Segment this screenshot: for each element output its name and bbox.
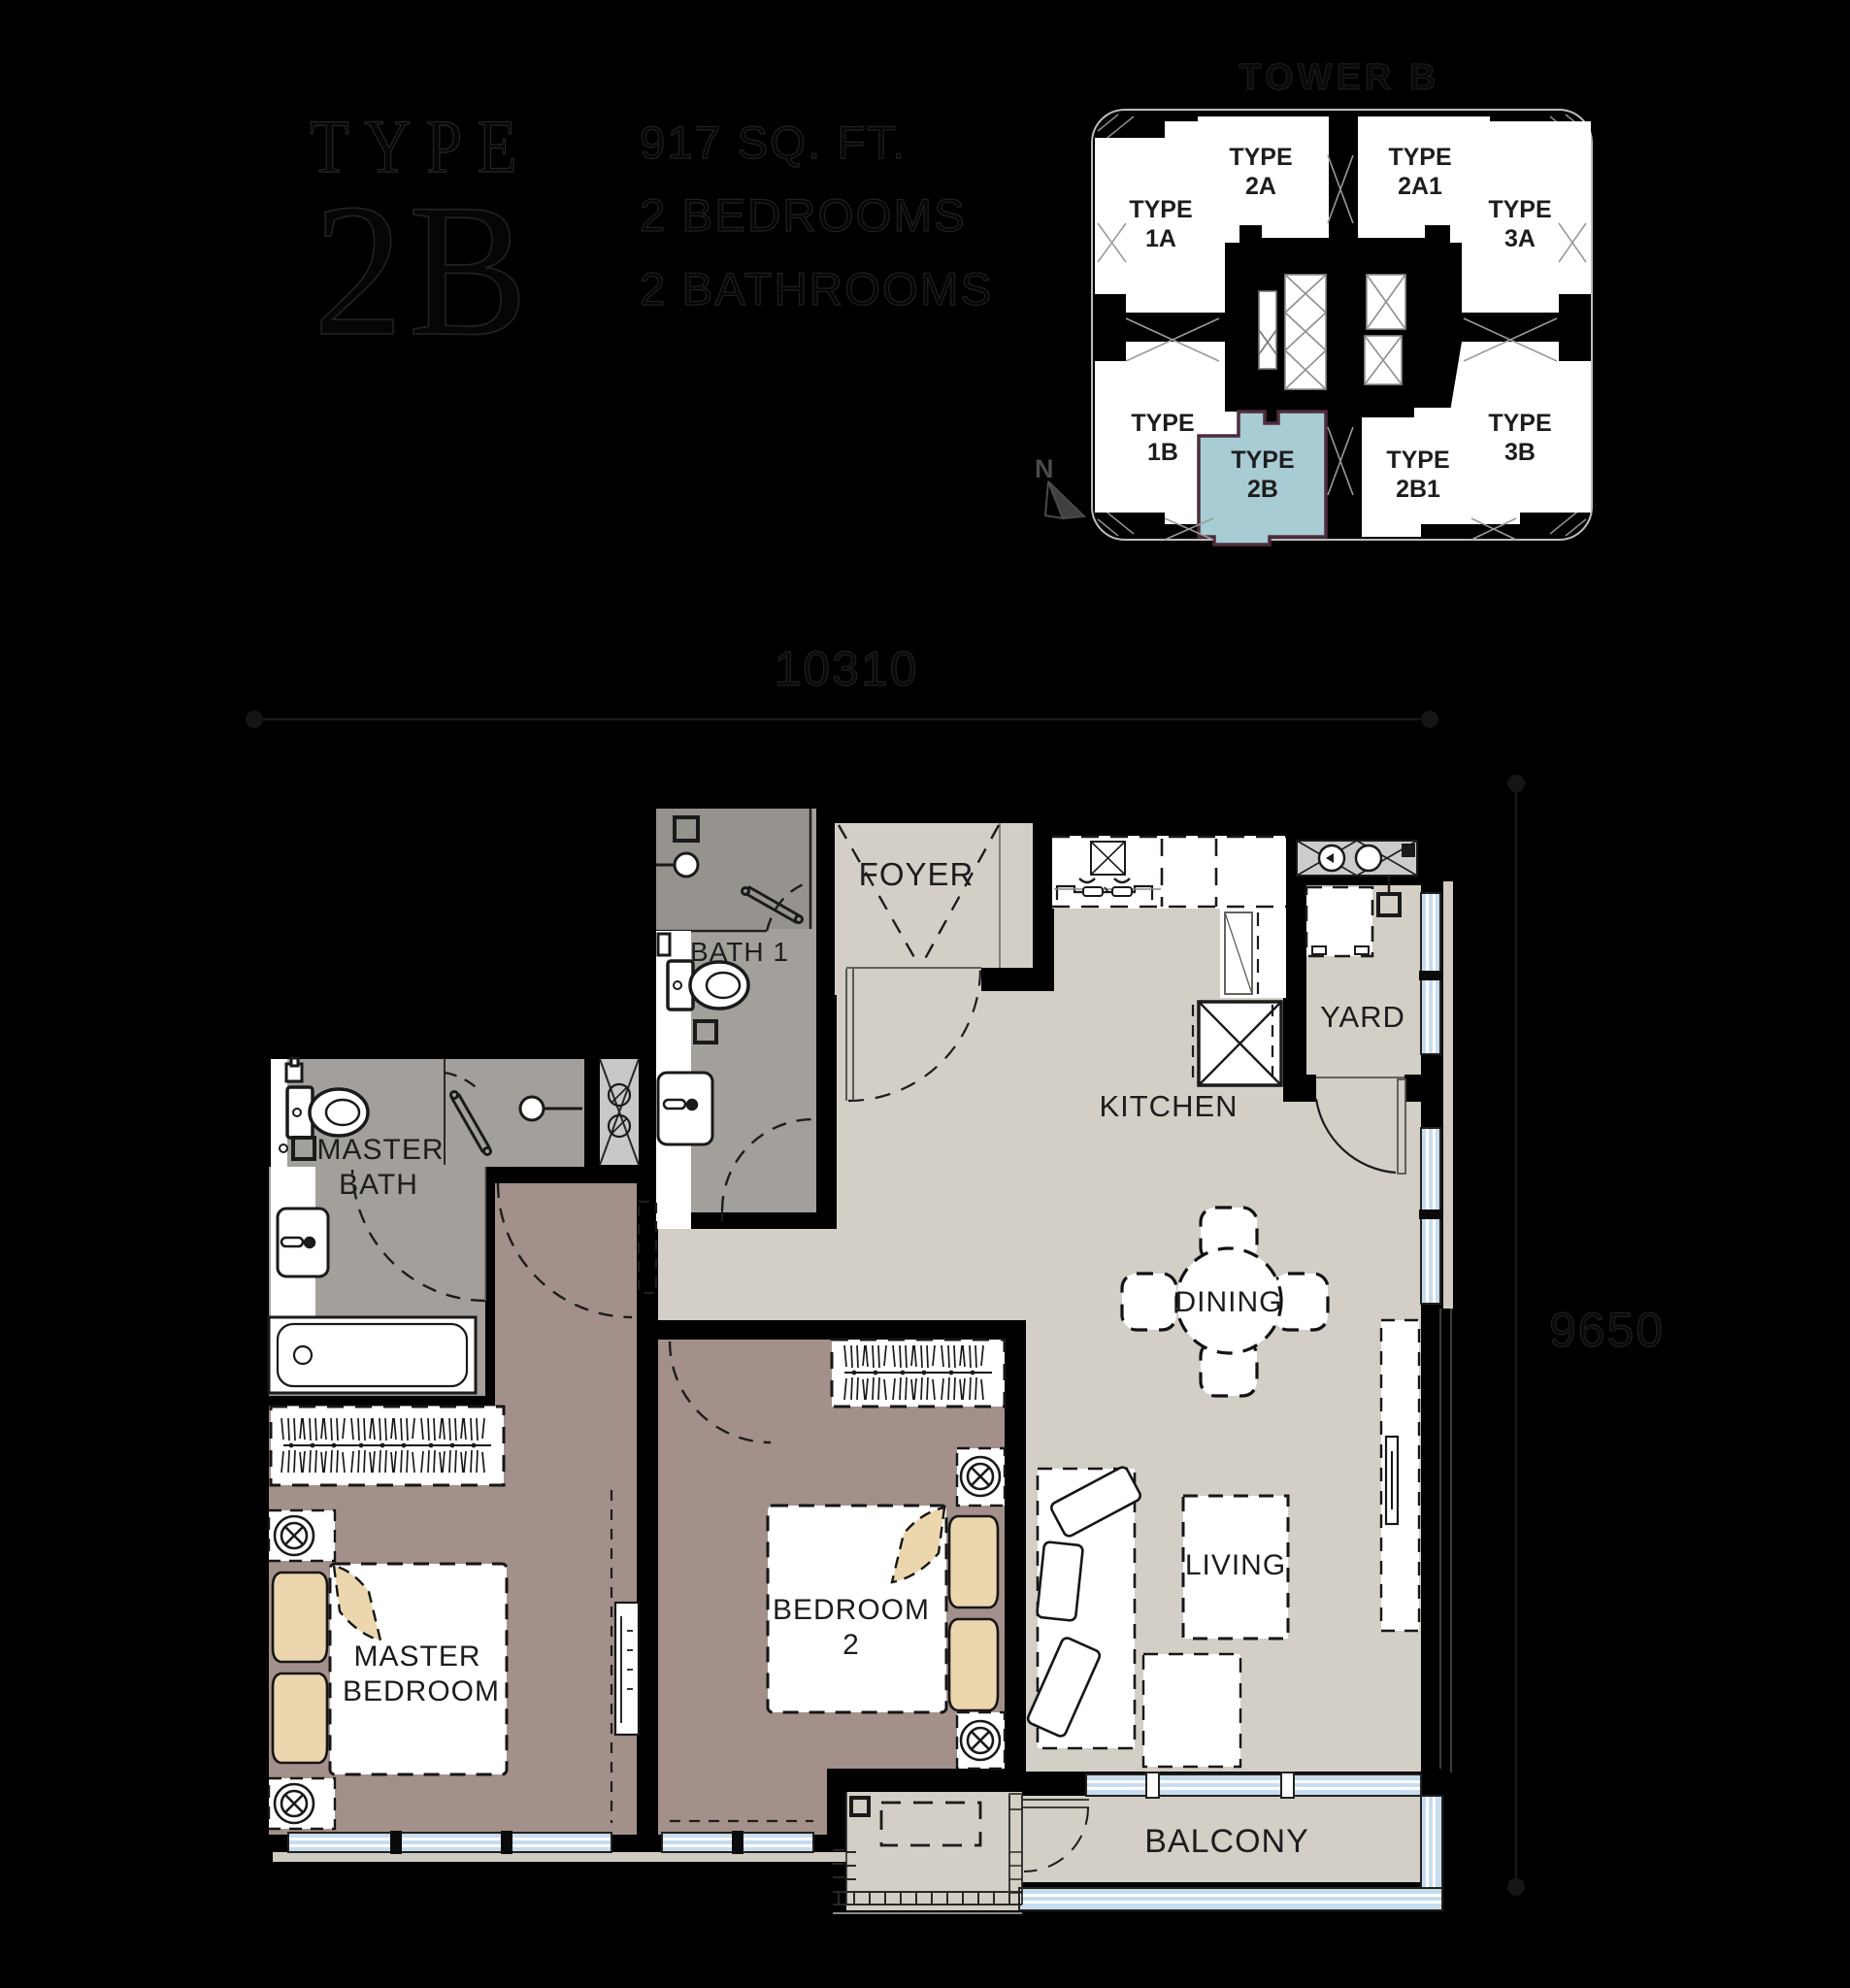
svg-text:KITCHEN: KITCHEN bbox=[1099, 1089, 1238, 1123]
svg-text:DINING: DINING bbox=[1175, 1286, 1283, 1318]
svg-text:TOWER B: TOWER B bbox=[1239, 57, 1440, 98]
svg-text:TYPE: TYPE bbox=[1488, 196, 1551, 223]
svg-text:MASTER: MASTER bbox=[353, 1640, 480, 1673]
svg-text:BATH 1: BATH 1 bbox=[690, 937, 789, 967]
svg-text:BATH: BATH bbox=[339, 1169, 418, 1201]
svg-text:2B: 2B bbox=[1247, 476, 1278, 503]
svg-text:2: 2 bbox=[842, 1629, 860, 1661]
svg-text:LIVING: LIVING bbox=[1185, 1549, 1286, 1581]
svg-text:1A: 1A bbox=[1145, 225, 1176, 252]
svg-text:2B1: 2B1 bbox=[1396, 476, 1440, 503]
svg-text:917 SQ. FT.: 917 SQ. FT. bbox=[640, 117, 907, 169]
svg-text:MASTER: MASTER bbox=[316, 1134, 444, 1166]
svg-text:3B: 3B bbox=[1504, 439, 1536, 466]
svg-text:TYPE: TYPE bbox=[1388, 144, 1451, 171]
svg-text:3A: 3A bbox=[1504, 225, 1536, 252]
svg-text:TYPE: TYPE bbox=[1229, 144, 1292, 171]
svg-text:BALCONY: BALCONY bbox=[1144, 1823, 1309, 1860]
svg-text:YARD: YARD bbox=[1320, 1000, 1405, 1034]
svg-text:1B: 1B bbox=[1147, 439, 1178, 466]
svg-text:2 BEDROOMS: 2 BEDROOMS bbox=[640, 190, 967, 242]
svg-text:FOYER: FOYER bbox=[859, 856, 975, 892]
svg-text:TYPE: TYPE bbox=[1386, 447, 1449, 474]
svg-text:BEDROOM: BEDROOM bbox=[773, 1594, 930, 1626]
svg-text:9650: 9650 bbox=[1549, 1303, 1665, 1357]
svg-text:TYPE: TYPE bbox=[1129, 196, 1192, 223]
svg-text:2A1: 2A1 bbox=[1398, 173, 1442, 200]
svg-text:N: N bbox=[1035, 454, 1054, 483]
svg-text:2 BATHROOMS: 2 BATHROOMS bbox=[640, 264, 993, 315]
svg-text:BEDROOM: BEDROOM bbox=[343, 1675, 500, 1707]
svg-text:TYPE: TYPE bbox=[1231, 447, 1294, 474]
svg-text:TYPE: TYPE bbox=[1488, 410, 1551, 437]
svg-text:TYPE: TYPE bbox=[1131, 410, 1194, 437]
svg-text:2A: 2A bbox=[1245, 173, 1276, 200]
svg-text:10310: 10310 bbox=[774, 642, 918, 696]
svg-text:2B: 2B bbox=[314, 166, 533, 376]
